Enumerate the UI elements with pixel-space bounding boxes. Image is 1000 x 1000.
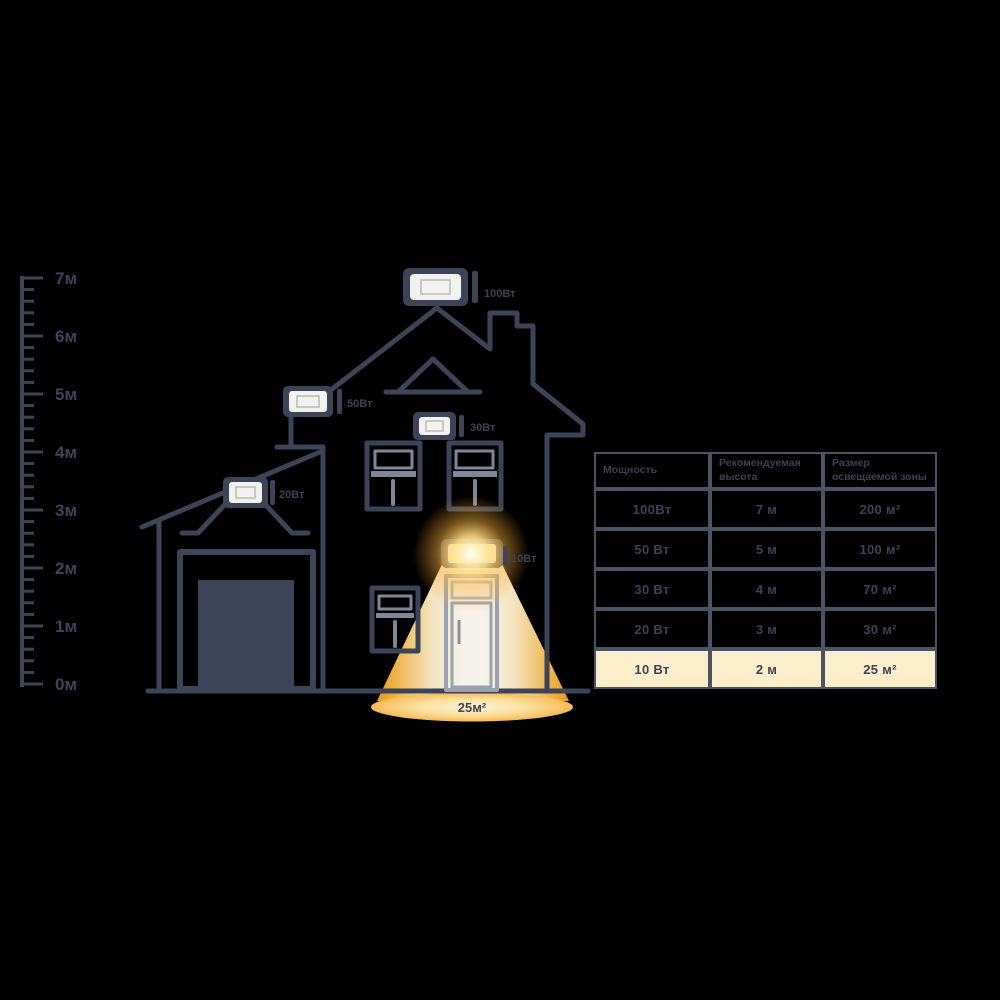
table-cell: 70 м² (823, 569, 937, 609)
ruler-label-4m: 4м (55, 443, 77, 462)
dormer-main (386, 359, 480, 392)
table-cell: 200 м² (823, 489, 937, 529)
table-cell-highlighted: 2 м (710, 649, 823, 689)
ruler-label-6m: 6м (55, 327, 77, 346)
ruler-label-0m: 0м (55, 675, 77, 694)
table-header-area: Размер освещаемой зоны (823, 452, 937, 489)
table-cell: 7 м (710, 489, 823, 529)
ruler-label-7m: 7м (55, 269, 77, 288)
floodlight-label-100w: 100Вт (484, 288, 516, 300)
table-cell: 50 Вт (594, 529, 710, 569)
table-cell-highlighted: 10 Вт (594, 649, 710, 689)
table-cell-highlighted: 25 м² (823, 649, 937, 689)
table-cell: 5 м (710, 529, 823, 569)
floodlight-10w-mount (503, 546, 508, 566)
ruler: 7м 6м 5м 4м 3м 2м 1м 0м (20, 269, 77, 694)
floodlight-label-20w: 20Вт (279, 489, 305, 501)
ruler-label-1m: 1м (55, 617, 77, 636)
ruler-label-5m: 5м (55, 385, 77, 404)
floodlight-20w: 20Вт (223, 477, 305, 508)
beam-area-label: 25м² (458, 700, 487, 715)
spec-table: Мощность Рекомендуемая высота Размер осв… (594, 452, 937, 689)
table-cell: 30 м² (823, 609, 937, 649)
floodlight-20w-mount (270, 480, 275, 505)
floodlight-100w: 100Вт (403, 268, 516, 306)
table-header-height: Рекомендуемая высота (710, 452, 823, 489)
floodlight-100w-mount (472, 271, 478, 303)
window-left (367, 443, 420, 509)
floodlight-label-30w: 30Вт (470, 422, 496, 434)
table-cell: 20 Вт (594, 609, 710, 649)
garage-door-panel (198, 580, 294, 690)
ruler-label-3m: 3м (55, 501, 77, 520)
floodlight-50w-mount (337, 389, 342, 414)
floodlight-label-50w: 50Вт (347, 398, 373, 410)
floodlight-label-10w: 10Вт (511, 553, 537, 565)
ruler-label-2m: 2м (55, 559, 77, 578)
floodlight-30w: 30Вт (413, 412, 496, 440)
table-cell: 100Вт (594, 489, 710, 529)
table-cell: 4 м (710, 569, 823, 609)
floodlight-30w-mount (459, 415, 464, 437)
floodlight-infographic: 7м 6м 5м 4м 3м 2м 1м 0м (0, 0, 1000, 1000)
table-header-power: Мощность (594, 452, 710, 489)
floodlight-10w-lit: 10Вт (413, 496, 537, 612)
table-cell: 30 Вт (594, 569, 710, 609)
floodlight-50w: 50Вт (283, 386, 373, 417)
table-cell: 3 м (710, 609, 823, 649)
table-cell: 100 м² (823, 529, 937, 569)
